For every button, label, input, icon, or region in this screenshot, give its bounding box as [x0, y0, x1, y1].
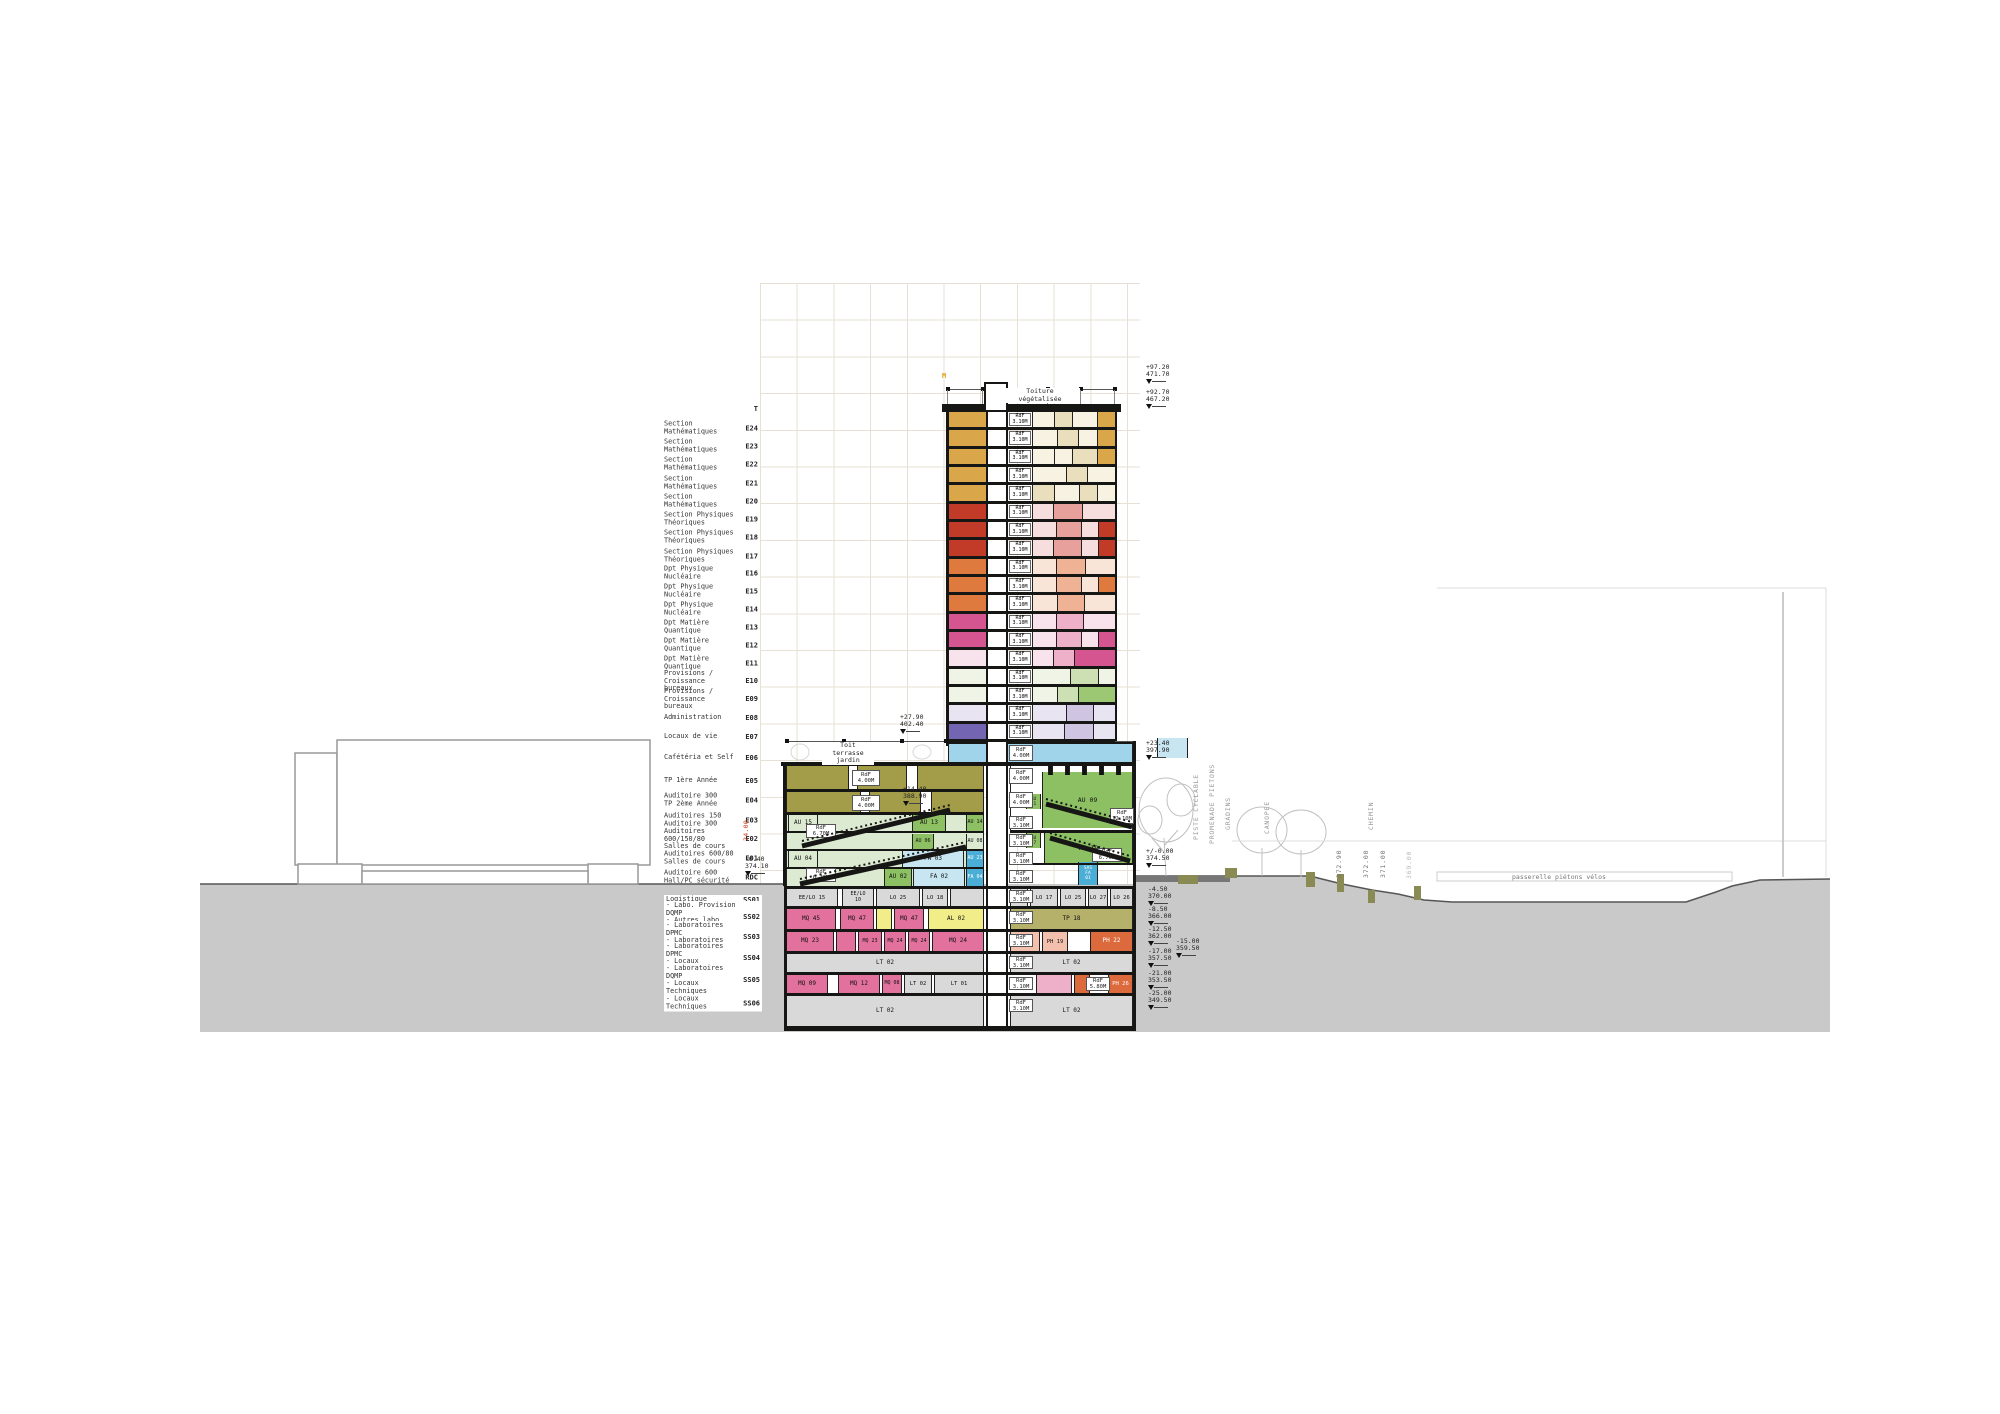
floor-label-row-E13: Dpt Matière QuantiqueE13 [664, 620, 758, 635]
site-label-canopee: CANOPEE [1263, 801, 1271, 834]
floor-code: E21 [745, 479, 758, 487]
elevation-tick [1152, 865, 1166, 866]
site-label-promenade-pietons: PROMENADE PIETONS [1208, 764, 1216, 844]
elevation-marker: -25.00349.50 [1148, 990, 1171, 1008]
floor-code: E15 [745, 587, 758, 595]
floor-code: E24 [745, 424, 758, 432]
floor-label-row-E04: Auditoire 300 TP 2ème AnnéeE04 [664, 793, 758, 808]
floor-label-row-E07: Locaux de vieE07 [664, 733, 758, 741]
elevation-absolute: 467.20 [1146, 396, 1169, 403]
floor-code: E22 [745, 460, 758, 468]
floor-label: TP 1ère Année [664, 777, 717, 785]
floor-code: E12 [745, 641, 758, 649]
site-label-gradins: GRADINS [1224, 797, 1232, 830]
floor-label: Section Mathématiques [664, 494, 742, 509]
elevation-tick [751, 873, 765, 874]
elevation-absolute: 370.00 [1148, 893, 1171, 900]
elevation-marker: +97.20471.70 [1146, 364, 1169, 382]
floor-label: Auditoires 600/150/80 Salles de cours [664, 828, 742, 851]
elevation-tick [1154, 987, 1168, 988]
elevation-absolute: 366.00 [1148, 913, 1171, 920]
floor-label-row-E06: Cafétéria et SelfE06 [664, 754, 758, 762]
floor-label: Administration [664, 714, 721, 722]
floor-code: E13 [745, 623, 758, 631]
floor-label: Section Mathématiques [664, 457, 742, 472]
floor-label: Section Mathématiques [664, 439, 742, 454]
elevation-tick [1152, 381, 1166, 382]
floor-code: T [754, 405, 758, 413]
floor-code: E20 [745, 497, 758, 505]
floor-label: Section Physiques Théoriques [664, 530, 734, 545]
floor-code: SS06 [743, 999, 760, 1007]
floor-code: SS05 [743, 976, 760, 984]
floor-label-row-E16: Dpt Physique NucléaireE16 [664, 566, 758, 581]
elevation-tick [909, 803, 923, 804]
elevation-absolute: 357.50 [1148, 955, 1171, 962]
floor-label-row-E23: Section MathématiquesE23 [664, 439, 758, 454]
elevation-marker: -8.50366.00 [1148, 906, 1171, 924]
elevation-marker: -4.50370.00 [1148, 886, 1171, 904]
floor-label: Provisions / Croissance bureaux [664, 688, 742, 711]
floor-code: E06 [745, 754, 758, 762]
vertical-dimension-label: 24.00 [742, 820, 750, 841]
elevation-absolute: 362.00 [1148, 933, 1171, 940]
site-label-372-90: 372.90 [1335, 850, 1343, 878]
floor-label-row-E12: Dpt Matière QuantiqueE12 [664, 638, 758, 653]
floor-label: Auditoire 600 Hall/PC sécurité [664, 870, 729, 885]
floor-label-row-E01: Auditoires 600/80 Salles de coursE01 [664, 851, 758, 866]
floor-code: SS04 [743, 954, 760, 962]
floor-label-row-E08: AdministrationE08 [664, 714, 758, 722]
floor-label-row-E21: Section MathématiquesE21 [664, 476, 758, 491]
floor-label-row-E18: Section Physiques ThéoriquesE18 [664, 530, 758, 545]
floor-label-row-E14: Dpt Physique NucléaireE14 [664, 602, 758, 617]
floor-label-row-E22: Section MathématiquesE22 [664, 457, 758, 472]
elevation-marker: -0.40374.10 [745, 856, 768, 874]
elevation-tick [1154, 903, 1168, 904]
elevation-marker: +23.40397.90 [1146, 740, 1169, 758]
toit-terrasse-jardin-label: Toit terrasse jardin [822, 742, 874, 765]
elevation-marker: +/-0.00374.50 [1146, 848, 1173, 866]
floor-label-row-E24: Section MathématiquesE24 [664, 421, 758, 436]
elevation-tick [1182, 955, 1196, 956]
floor-label: Dpt Matière Quantique [664, 620, 742, 635]
floor-code: E08 [745, 714, 758, 722]
floor-code: E17 [745, 552, 758, 560]
floor-label-row-T: T [664, 405, 758, 413]
floor-code: E07 [745, 733, 758, 741]
floor-label: Section Mathématiques [664, 421, 742, 436]
floor-label: Auditoires 600/80 Salles de cours [664, 851, 734, 866]
floor-label-row-E20: Section MathématiquesE20 [664, 494, 758, 509]
elevation-tick [1152, 757, 1166, 758]
elevation-absolute: 349.50 [1148, 997, 1171, 1004]
elevation-absolute: 374.50 [1146, 855, 1173, 862]
elevation-tick [906, 731, 920, 732]
floor-code: E19 [745, 515, 758, 523]
elevation-absolute: 402.40 [900, 721, 923, 728]
floor-code: E18 [745, 533, 758, 541]
floor-code: E23 [745, 442, 758, 450]
elevation-tick [1154, 943, 1168, 944]
site-label-chemin: CHEMIN [1367, 802, 1375, 830]
floor-label: Section Physiques Théoriques [664, 512, 734, 527]
elevation-tick [1154, 923, 1168, 924]
floor-label-row-RDC: Auditoire 600 Hall/PC sécuritéRDC [664, 870, 758, 885]
site-label-372-00: 372.00 [1362, 850, 1370, 878]
floor-code: E05 [745, 777, 758, 785]
elevation-absolute: 353.50 [1148, 977, 1171, 984]
floor-label-row-E09: Provisions / Croissance bureauxE09 [664, 688, 758, 711]
floor-code: E14 [745, 605, 758, 613]
floor-label: Locaux de vie [664, 733, 717, 741]
elevation-marker: -12.50362.00 [1148, 926, 1171, 944]
elevation-marker: +27.90402.40 [900, 714, 923, 732]
floor-label: Dpt Physique Nucléaire [664, 566, 742, 581]
floor-label: Section Mathématiques [664, 476, 742, 491]
floor-label: Auditoires 150 Auditoire 300 [664, 813, 721, 828]
elevation-tick [1154, 965, 1168, 966]
elevation-absolute: 471.70 [1146, 371, 1169, 378]
grid-axis-mark: M [942, 372, 946, 380]
site-label-piste-cyclable: PISTE CYCLABLE [1192, 774, 1200, 840]
floor-label: - Laboratoires DQMP - Locaux Techniques [666, 965, 740, 995]
elevation-marker: -15.00359.50 [1176, 938, 1199, 956]
floor-code: SS02 [743, 913, 760, 921]
floor-code: E04 [745, 796, 758, 804]
floor-code: E09 [745, 695, 758, 703]
floor-label-row-SS05: - Laboratoires DQMP - Locaux TechniquesS… [664, 964, 762, 996]
site-label-369-00: 369.00 [1405, 851, 1413, 879]
floor-label-row-E17: Section Physiques ThéoriquesE17 [664, 549, 758, 564]
elevation-absolute: 374.10 [745, 863, 768, 870]
elevation-marker: -17.00357.50 [1148, 948, 1171, 966]
floor-code: E11 [745, 659, 758, 667]
floor-label-row-E05: TP 1ère AnnéeE05 [664, 777, 758, 785]
elevation-marker: +92.70467.20 [1146, 389, 1169, 407]
floor-label: Dpt Physique Nucléaire [664, 602, 742, 617]
floor-label-row-E19: Section Physiques ThéoriquesE19 [664, 512, 758, 527]
floor-label: Section Physiques Théoriques [664, 549, 734, 564]
floor-code: SS03 [743, 933, 760, 941]
elevation-tick [1152, 406, 1166, 407]
floor-label: Auditoire 300 TP 2ème Année [664, 793, 717, 808]
floor-label: Cafétéria et Self [664, 754, 734, 762]
floor-label-row-SS06: - Locaux TechniquesSS06 [664, 995, 762, 1012]
floor-code: E10 [745, 677, 758, 685]
architectural-section-sheet: passerelle piétons vélos TSection Mathém… [0, 0, 2000, 1414]
floor-label: Dpt Physique Nucléaire [664, 584, 742, 599]
elevation-absolute: 388.90 [903, 793, 926, 800]
stair-rakes-layer [0, 0, 2000, 1414]
floor-label: Dpt Matière Quantique [664, 638, 742, 653]
toiture-vegetalisee-label: Toiture végétalisée [1000, 388, 1080, 403]
floor-label-row-E15: Dpt Physique NucléaireE15 [664, 584, 758, 599]
floor-code: E16 [745, 569, 758, 577]
elevation-absolute: 397.90 [1146, 747, 1169, 754]
elevation-marker: -21.00353.50 [1148, 970, 1171, 988]
elevation-tick [1154, 1007, 1168, 1008]
floor-label: - Locaux Techniques [666, 996, 740, 1011]
elevation-marker: +14.40388.90 [903, 786, 926, 804]
site-label-371-00: 371.00 [1379, 850, 1387, 878]
elevation-absolute: 359.50 [1176, 945, 1199, 952]
